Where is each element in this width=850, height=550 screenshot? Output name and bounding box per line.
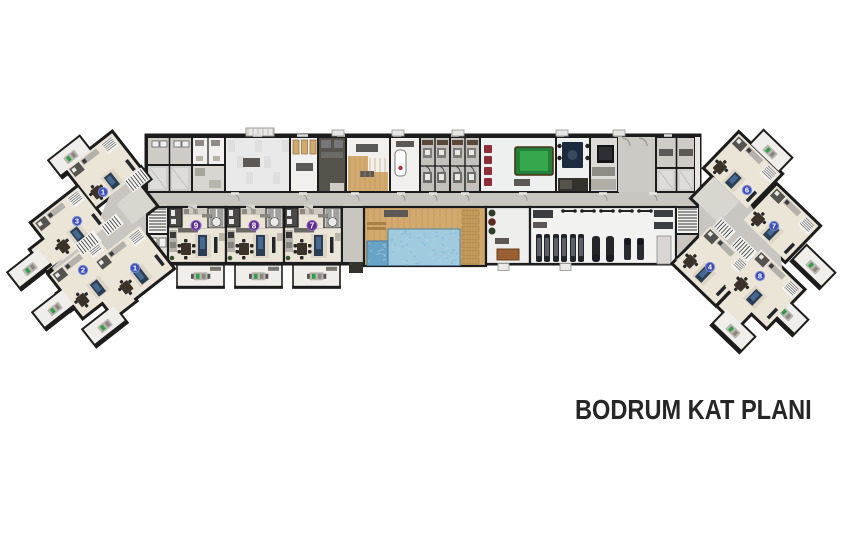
svg-text:8: 8 [758, 272, 762, 281]
svg-text:BODRUM KAT PLANI: BODRUM KAT PLANI [575, 395, 812, 425]
svg-text:6: 6 [745, 186, 749, 195]
svg-text:2: 2 [81, 266, 85, 275]
svg-text:8: 8 [252, 221, 257, 230]
svg-text:3: 3 [75, 217, 79, 226]
svg-text:7: 7 [310, 221, 315, 230]
svg-text:1: 1 [101, 188, 105, 197]
svg-text:9: 9 [194, 221, 199, 230]
svg-text:7: 7 [772, 222, 776, 231]
svg-text:1: 1 [133, 264, 137, 273]
